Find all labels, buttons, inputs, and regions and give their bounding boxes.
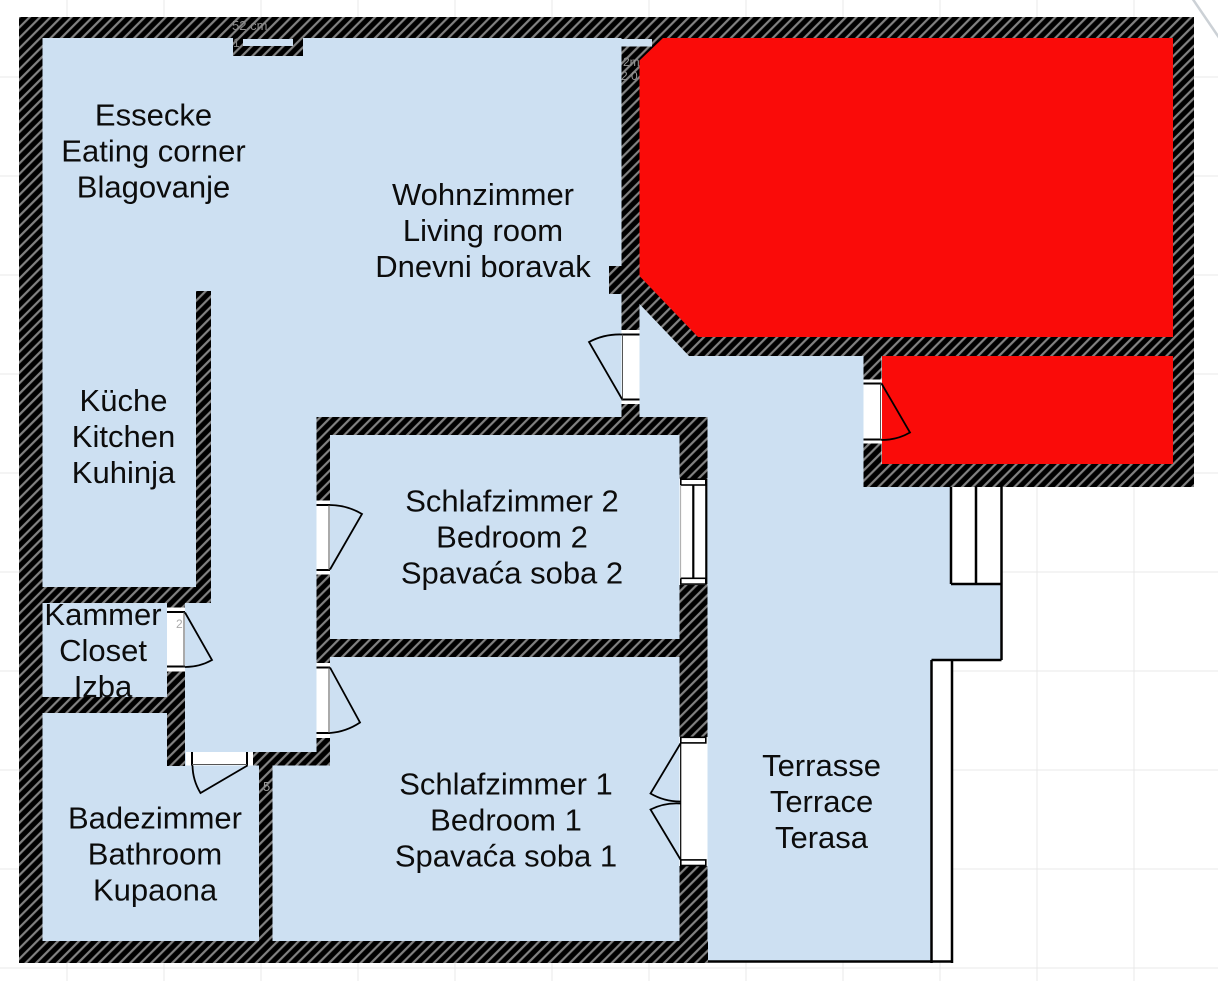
svg-text:Kitchen: Kitchen — [72, 419, 175, 454]
svg-text:Closet: Closet — [59, 633, 147, 668]
svg-text:Schlafzimmer 2: Schlafzimmer 2 — [405, 484, 619, 519]
svg-text:5: 5 — [263, 779, 270, 794]
svg-text:Spavaća soba 2: Spavaća soba 2 — [401, 556, 623, 591]
svg-text:Bedroom 2: Bedroom 2 — [436, 520, 588, 555]
svg-text:1: 1 — [233, 36, 240, 50]
svg-text:Essecke: Essecke — [95, 98, 212, 133]
svg-text:Wohnzimmer: Wohnzimmer — [392, 177, 574, 212]
svg-text:Bathroom: Bathroom — [88, 837, 222, 872]
svg-text:Terrace: Terrace — [770, 784, 873, 819]
svg-text:2: 2 — [176, 617, 183, 631]
svg-text:2m: 2m — [623, 55, 640, 69]
svg-text:Badezimmer: Badezimmer — [68, 801, 242, 836]
svg-text:Spavaća soba 1: Spavaća soba 1 — [395, 839, 617, 874]
svg-text:Living room: Living room — [403, 213, 563, 248]
svg-text:Dnevni boravak: Dnevni boravak — [375, 249, 591, 284]
svg-text:Blagovanje: Blagovanje — [77, 170, 230, 205]
svg-text:Bedroom 1: Bedroom 1 — [430, 803, 582, 838]
svg-text:2 0: 2 0 — [621, 69, 638, 83]
svg-text:Küche: Küche — [80, 383, 168, 418]
svg-text:Kupaona: Kupaona — [93, 873, 218, 908]
svg-text:Terasa: Terasa — [775, 820, 869, 855]
svg-text:Eating corner: Eating corner — [61, 134, 245, 169]
svg-text:Kuhinja: Kuhinja — [72, 455, 176, 490]
svg-text:Schlafzimmer 1: Schlafzimmer 1 — [399, 767, 613, 802]
svg-text:52 cm: 52 cm — [232, 18, 267, 33]
svg-text:Kammer: Kammer — [44, 597, 161, 632]
svg-text:Izba: Izba — [74, 669, 133, 704]
svg-text:Terrasse: Terrasse — [762, 748, 881, 783]
